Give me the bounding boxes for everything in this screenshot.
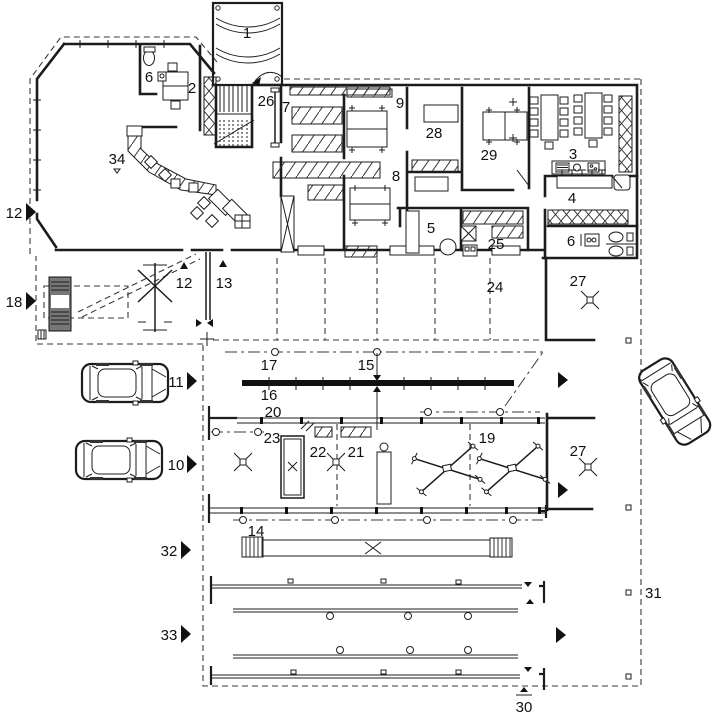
- label-car-11: 11: [168, 374, 184, 391]
- stair-wall-hatch: [204, 77, 216, 135]
- workbench: [345, 246, 377, 257]
- label-office: 2: [188, 80, 196, 97]
- label-line-23: 23: [264, 430, 281, 447]
- chair: [206, 215, 219, 228]
- label-room-29: 29: [481, 147, 498, 164]
- table-8: [415, 177, 448, 191]
- door-arrow-icon: [524, 667, 532, 672]
- workbench: [347, 89, 392, 97]
- label-pit-22: 22: [310, 444, 327, 461]
- cabinet: [406, 211, 419, 253]
- label-ramp-14: 14: [248, 523, 265, 540]
- label-car-10: 10: [168, 457, 185, 474]
- label-hall-9: 9: [396, 95, 404, 112]
- label-stairs-26: 26: [258, 93, 275, 110]
- scissor-lift-icon: [409, 440, 485, 497]
- label-barrier-16: 16: [261, 387, 278, 404]
- direction-arrow-icon: [558, 372, 568, 388]
- floor-marker-icon: [581, 291, 599, 309]
- side-table: [171, 179, 180, 188]
- desk-28: [424, 105, 458, 122]
- label-room-25: 25: [488, 236, 505, 253]
- toilet-icon: [609, 232, 623, 242]
- round-table: [440, 239, 456, 255]
- rack-supports: [288, 579, 461, 674]
- label-wall-20: 20: [265, 404, 282, 421]
- label-counter-bar: 4: [568, 190, 576, 207]
- label-marker-21: 21: [348, 444, 365, 461]
- label-arrow-12-icon: [26, 203, 36, 221]
- bar-counter: [557, 176, 612, 188]
- label-meeting-room: 3: [569, 146, 577, 163]
- ramp-end: [490, 538, 512, 557]
- label-arrow-11-icon: [187, 372, 197, 390]
- side-table: [189, 183, 198, 192]
- car-top-view-angled: [633, 353, 716, 449]
- car-top-view-11: [82, 361, 168, 405]
- label-door-13: 13: [216, 275, 233, 292]
- label-washbay-27l: 27: [570, 443, 587, 460]
- cloakroom-lockers: [548, 210, 628, 224]
- reception-marker-icon: [114, 169, 120, 173]
- chair: [191, 207, 204, 220]
- gate-arrow-icon: [373, 386, 381, 392]
- yard: [38, 260, 599, 695]
- hydrant-mark: [38, 330, 46, 339]
- label-racks-33: 33: [161, 627, 178, 644]
- workbench: [412, 160, 458, 172]
- direction-arrow-icon: [556, 627, 566, 643]
- label-bay-24: 24: [487, 279, 504, 296]
- boundary-post: [626, 590, 631, 595]
- label-boundary-30: 30: [516, 699, 533, 714]
- boundary-post: [626, 338, 631, 343]
- label-wc-showroom: 6: [145, 69, 153, 86]
- washbasin-icon: [158, 72, 166, 81]
- equipment-column: [377, 452, 391, 504]
- floor-marker-icon: [327, 453, 345, 471]
- locker-strip: [619, 96, 632, 172]
- boundary-post: [626, 505, 631, 510]
- label-entrance-12: 12: [6, 205, 23, 222]
- meeting-table: [541, 95, 558, 140]
- car-top-view-10: [76, 438, 162, 482]
- label-washbay-27u: 27: [570, 273, 587, 290]
- label-arrow-18-icon: [26, 292, 36, 310]
- label-boundary-31: 31: [645, 585, 662, 602]
- entrance-canopy: [213, 3, 283, 86]
- toilet-icon: [609, 246, 623, 256]
- meeting-table: [585, 93, 602, 138]
- door-leaf: [298, 246, 324, 255]
- floor-plan: 1 2 3 4 5 6 6 7 8 9 10 11 12 12 13 14 15…: [0, 0, 720, 714]
- label-lift-bay-19: 19: [479, 430, 496, 447]
- label-room-8: 8: [392, 168, 400, 185]
- direction-arrow-icon: [558, 482, 568, 498]
- label-corridor: 7: [282, 99, 290, 116]
- floor-marker-icon: [579, 458, 597, 476]
- workbench: [273, 162, 380, 178]
- label-room-28: 28: [426, 125, 443, 142]
- workbench: [308, 185, 343, 200]
- gate-arrow-icon: [196, 319, 202, 327]
- door-swing: [517, 170, 529, 186]
- door-arrow-icon: [219, 260, 227, 267]
- label-canopy: 1: [243, 25, 251, 42]
- gate-arrow-icon: [207, 319, 213, 327]
- workbench: [292, 135, 342, 152]
- label-arrow-32-icon: [181, 541, 191, 559]
- floor-marker-icon: [234, 453, 252, 471]
- toilet-icon: [144, 51, 155, 66]
- scissor-lift-icon: [474, 440, 550, 497]
- door-arrow-icon: [524, 582, 532, 587]
- workshop: [273, 87, 636, 257]
- boundary-30-arrow-icon: [520, 687, 528, 692]
- barrier-16-line: [242, 380, 514, 386]
- label-yard-18: 18: [6, 294, 23, 311]
- door-arrow-icon: [180, 262, 188, 269]
- label-reception-34: 34: [109, 151, 126, 168]
- label-wc-workshop: 6: [567, 233, 575, 250]
- label-gate-15: 15: [358, 357, 375, 374]
- corner-brackets: [539, 505, 546, 690]
- ramp-end: [242, 537, 263, 557]
- label-arrow-10-icon: [187, 455, 197, 473]
- chair: [168, 63, 177, 71]
- boundary-post: [626, 674, 631, 679]
- staircase: [204, 77, 254, 147]
- label-racks-32: 32: [161, 543, 178, 560]
- door-arrow-icon: [526, 599, 534, 604]
- label-line-17: 17: [261, 357, 278, 374]
- label-arrow-33-icon: [181, 625, 191, 643]
- workbench: [292, 107, 342, 124]
- label-door-12: 12: [176, 275, 193, 292]
- chair: [171, 101, 180, 109]
- label-staff-room: 5: [427, 220, 435, 237]
- workbench: [463, 211, 523, 224]
- storage-racks: [212, 585, 522, 678]
